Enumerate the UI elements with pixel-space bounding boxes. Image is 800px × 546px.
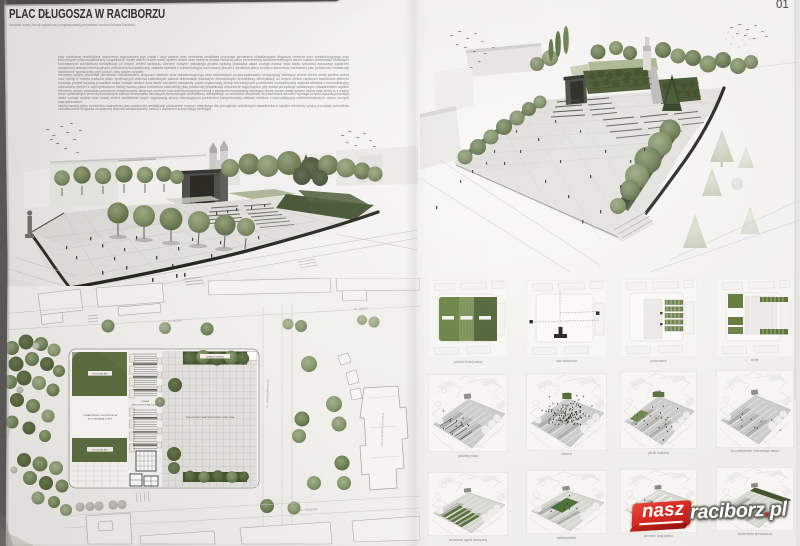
svg-text:UL. NOWA: UL. NOWA [354, 307, 368, 311]
svg-text:POLE ZIELENI: POLE ZIELENI [93, 450, 108, 452]
svg-text:WIELOFUNKCYJNA PRZESTRZEŃ PUBL: WIELOFUNKCYJNA PRZESTRZEŃ PUBLICZNA [186, 416, 235, 419]
svg-text:UL. NOWA: UL. NOWA [168, 319, 182, 323]
svg-text:ROZSTAWIANIA SCENY: ROZSTAWIANIA SCENY [88, 418, 113, 421]
svg-text:SZPALER DRZEW: SZPALER DRZEW [206, 355, 224, 358]
svg-text:WIELOFUNKCYJNA Z WODĄ: WIELOFUNKCYJNA Z WODĄ [132, 403, 160, 406]
svg-text:UTWARDZENIE Z MOŻLIWOŚCIĄ: UTWARDZENIE Z MOŻLIWOŚCIĄ [83, 414, 118, 417]
svg-text:POLE ZIELENI: POLE ZIELENI [93, 373, 108, 375]
svg-text:STREFA: STREFA [141, 400, 149, 403]
